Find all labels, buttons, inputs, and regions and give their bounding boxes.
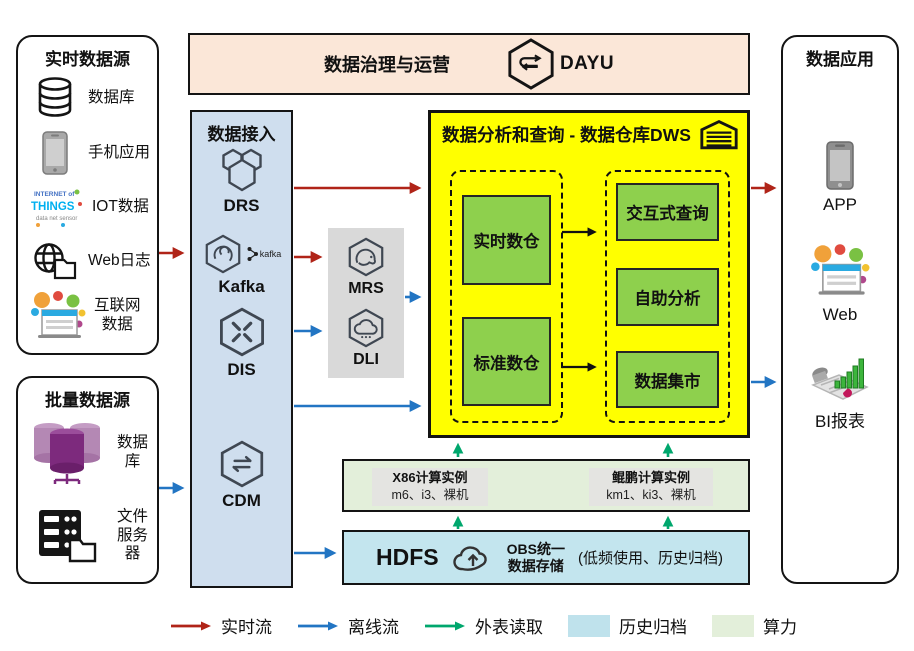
app-label: Web xyxy=(823,305,858,325)
legend-item: 历史归档 xyxy=(568,613,687,638)
kafka-badge-label: kafka xyxy=(260,249,282,259)
legend-item: 实时流 xyxy=(170,613,272,638)
bi-icon xyxy=(809,355,871,403)
iot-icon: INTERNET of THINGS data net sensor xyxy=(30,185,84,229)
batch-sources-box: 批量数据源 数据库 xyxy=(16,376,159,584)
obs-cloud-icon xyxy=(452,542,494,573)
legend-label: 历史归档 xyxy=(619,613,687,638)
history-archive-swatch xyxy=(568,615,610,637)
mobile-app-icon xyxy=(30,131,80,175)
service-mrs: MRS xyxy=(328,236,404,298)
compute-swatch xyxy=(712,615,754,637)
list-item: 文件 服务器 xyxy=(30,508,153,564)
source-label: IOT数据 xyxy=(92,198,149,217)
legend-label: 实时流 xyxy=(221,613,272,638)
governance-banner: 数据治理与运营 DAYU xyxy=(188,33,750,95)
legend-label: 外表读取 xyxy=(475,613,543,638)
data-mart: 数据集市 xyxy=(616,351,719,408)
file-server-icon xyxy=(30,508,104,564)
purple-database-icon xyxy=(30,418,104,488)
realtime-sources-title: 实时数据源 xyxy=(18,45,157,70)
service-name: MRS xyxy=(348,280,384,298)
app-icon xyxy=(825,141,855,191)
list-item: INTERNET of THINGS data net sensor IOT数据 xyxy=(30,185,153,229)
dws-box: 数据分析和查询 - 数据仓库DWS 实时数仓 标准数仓 交互式查询 自助分析 数… xyxy=(428,110,750,438)
source-label: 文件 服务器 xyxy=(112,508,153,564)
x86-instance: X86计算实例 m6、i3、裸机 xyxy=(372,468,488,506)
legend-item: 算力 xyxy=(712,613,797,638)
kafka-logo-icon xyxy=(246,246,259,262)
list-item: 数据库 xyxy=(30,418,153,488)
internet-data-icon xyxy=(30,289,86,343)
list-item: 手机应用 xyxy=(30,131,153,175)
warehouse-icon xyxy=(698,119,740,150)
service-drs: DRS xyxy=(192,148,291,216)
svg-text:INTERNET of: INTERNET of xyxy=(34,191,75,198)
kunpeng-instance: 鲲鹏计算实例 km1、ki3、裸机 xyxy=(589,468,713,506)
legend-label: 离线流 xyxy=(348,613,399,638)
offline-flow-arrow-icon xyxy=(297,620,339,632)
service-name: Kafka xyxy=(218,277,264,297)
kafka-icon xyxy=(202,233,244,275)
svg-text:data net sensor: data net sensor xyxy=(36,216,77,222)
batch-sources-title: 批量数据源 xyxy=(18,386,157,411)
app-label: APP xyxy=(823,195,857,215)
storage-box: HDFS OBS统一 数据存储 (低频使用、历史归档) xyxy=(342,530,750,585)
list-item: APP xyxy=(783,141,897,215)
external-read-arrow-icon xyxy=(424,620,466,632)
list-item: Web日志 xyxy=(30,239,153,283)
service-name: DRS xyxy=(224,196,260,216)
obs-label: OBS统一 数据存储 xyxy=(507,541,565,575)
instance-name: 鲲鹏计算实例 xyxy=(612,470,690,487)
source-label: 互联网 数据 xyxy=(94,297,141,334)
architecture-diagram: 实时数据源 数据库 手机应用 INTERNET of THINGS data xyxy=(0,0,914,651)
data-ingest-title: 数据接入 xyxy=(192,120,291,145)
storage-note: (低频使用、历史归档) xyxy=(578,547,723,568)
hdfs-label: HDFS xyxy=(376,544,439,571)
realtime-sources-box: 实时数据源 数据库 手机应用 INTERNET of THINGS data xyxy=(16,35,159,355)
dayu-label: DAYU xyxy=(560,53,614,75)
list-item: Web xyxy=(783,241,897,325)
applications-title: 数据应用 xyxy=(783,45,897,70)
compute-engines-panel: MRS DLI xyxy=(328,228,404,378)
source-label: 数据库 xyxy=(88,89,135,108)
dli-icon xyxy=(344,307,388,349)
web-icon xyxy=(810,241,870,301)
kafka-badge: kafka xyxy=(246,246,282,262)
dayu-icon xyxy=(506,37,556,91)
realtime-warehouse: 实时数仓 xyxy=(462,195,551,285)
drs-icon xyxy=(217,148,267,194)
svg-text:THINGS: THINGS xyxy=(31,201,75,213)
legend-item: 外表读取 xyxy=(424,613,543,638)
app-label: BI报表 xyxy=(815,407,865,432)
service-cdm: CDM xyxy=(192,439,291,511)
service-dli: DLI xyxy=(328,307,404,369)
dis-icon xyxy=(216,306,268,358)
governance-title: 数据治理与运营 xyxy=(324,51,450,77)
list-item: BI报表 xyxy=(783,355,897,432)
instance-name: X86计算实例 xyxy=(392,470,467,487)
service-kafka: kafka Kafka xyxy=(192,233,291,297)
source-label: 手机应用 xyxy=(88,144,150,163)
dayu-brand: DAYU xyxy=(506,37,614,91)
data-ingest-box: 数据接入 DRS xyxy=(190,110,293,588)
list-item: 数据库 xyxy=(30,75,153,121)
source-label: Web日志 xyxy=(88,252,151,271)
instance-spec: km1、ki3、裸机 xyxy=(606,487,696,503)
list-item: 互联网 数据 xyxy=(30,289,153,343)
service-name: DLI xyxy=(353,351,379,369)
dws-title: 数据分析和查询 - 数据仓库DWS xyxy=(442,122,691,147)
legend-label: 算力 xyxy=(763,613,797,638)
cdm-icon xyxy=(217,439,267,489)
interactive-query: 交互式查询 xyxy=(616,183,719,241)
standard-warehouse: 标准数仓 xyxy=(462,317,551,406)
service-dis: DIS xyxy=(192,306,291,380)
service-name: DIS xyxy=(227,360,255,380)
instance-spec: m6、i3、裸机 xyxy=(391,487,468,503)
realtime-flow-arrow-icon xyxy=(170,620,212,632)
legend: 实时流 离线流 外表读取 历史归档 算力 xyxy=(170,613,797,638)
self-service-analysis: 自助分析 xyxy=(616,268,719,326)
service-name: CDM xyxy=(222,491,261,511)
legend-item: 离线流 xyxy=(297,613,399,638)
applications-box: 数据应用 APP Web xyxy=(781,35,899,584)
compute-pool-box: X86计算实例 m6、i3、裸机 鲲鹏计算实例 km1、ki3、裸机 xyxy=(342,459,750,512)
database-icon xyxy=(30,75,80,121)
source-label: 数据库 xyxy=(112,434,153,471)
mrs-icon xyxy=(344,236,388,278)
weblog-icon xyxy=(30,239,80,283)
